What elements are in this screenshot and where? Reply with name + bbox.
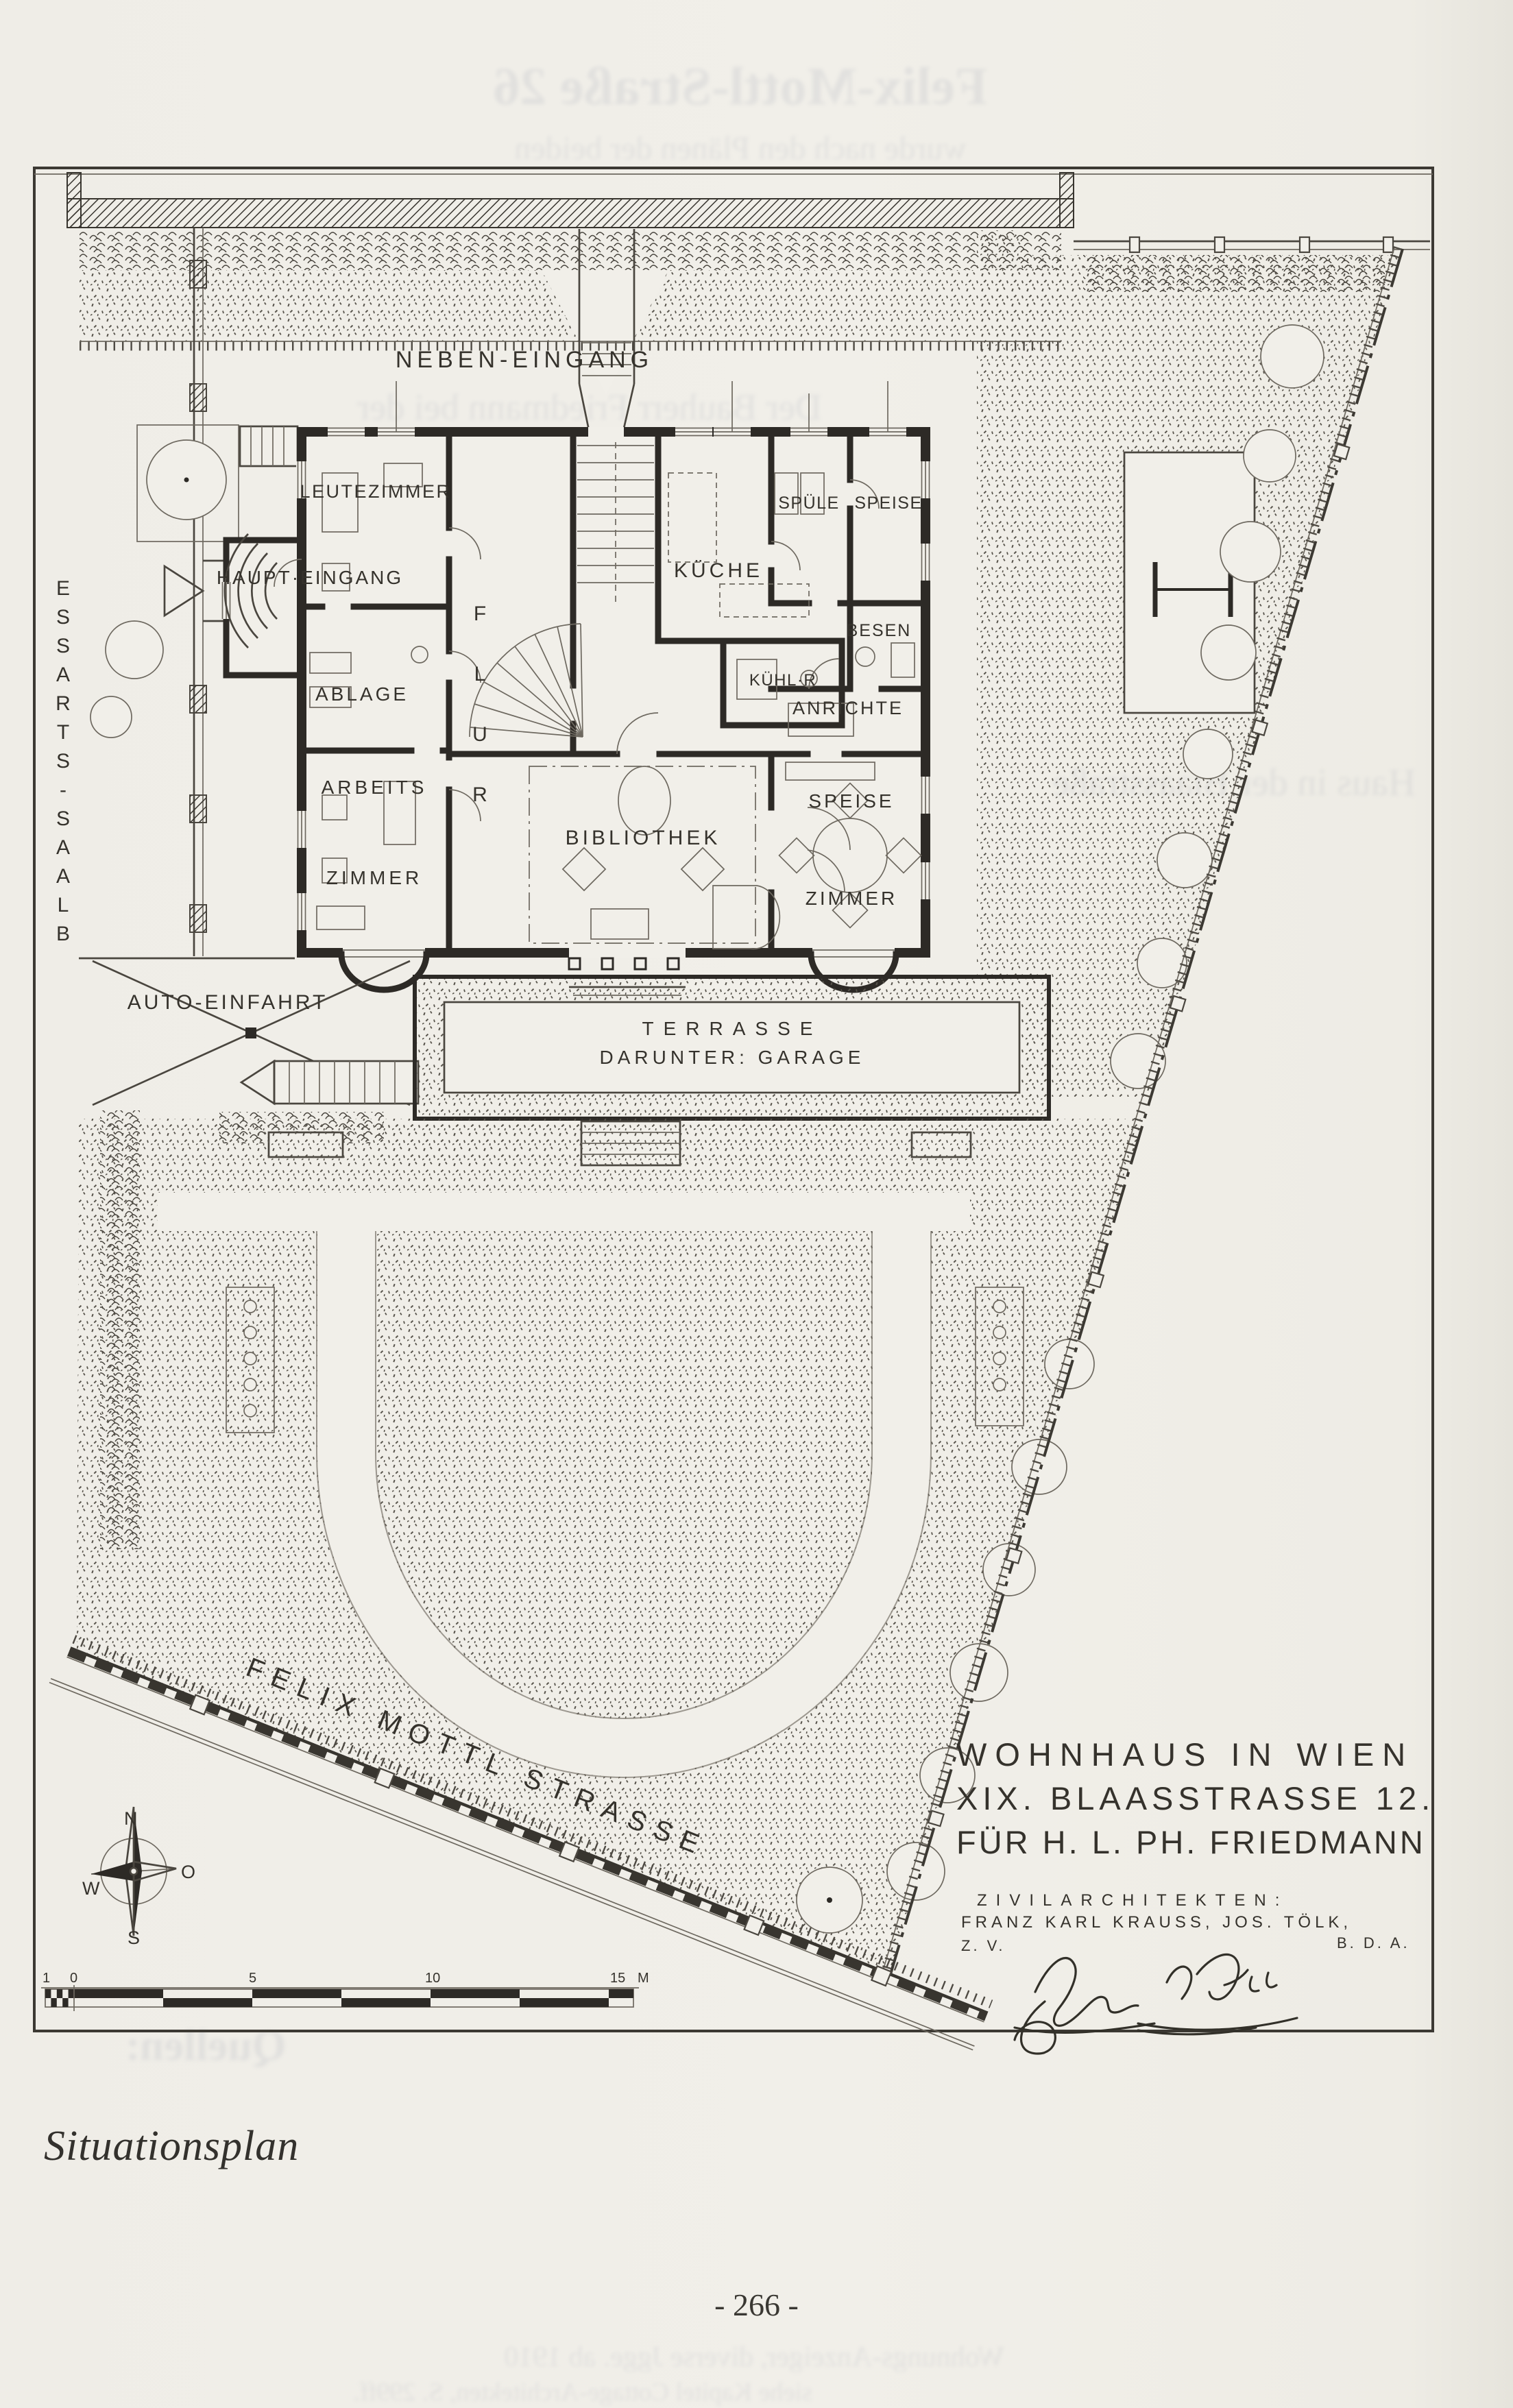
kueche-label: KÜCHE	[674, 559, 763, 582]
scale-bar: 1 0 5 10 15 M	[41, 1971, 649, 2011]
cross-walk	[158, 1193, 970, 1231]
scale-label-1: 1	[43, 1971, 50, 1986]
compass-east-label: O	[181, 1862, 195, 1882]
figure-caption: Situationsplan	[44, 2122, 299, 2171]
architects-label: ZIVILARCHITEKTEN:	[977, 1891, 1288, 1910]
scale-bar-blocks	[45, 1989, 633, 2007]
fence-posts	[190, 260, 206, 932]
architects-association-bda: B. D. A.	[1337, 1934, 1410, 1951]
title-line-3: FÜR H. L. PH. FRIEDMANN	[956, 1824, 1426, 1860]
anrichte-label: ANRICHTE	[792, 698, 904, 718]
main-gate-arrow	[165, 566, 203, 616]
auto-einfahrt-label: AUTO-EINFAHRT	[128, 991, 328, 1014]
terrasse-label: TERRASSE	[642, 1018, 823, 1039]
ablage-label: ABLAGE	[315, 683, 409, 705]
haupt-eingang-label: HAUPT·EINGANG	[217, 567, 403, 588]
darunter-garage-label: DARUNTER: GARAGE	[600, 1047, 865, 1068]
title-line-1: WOHNHAUS IN WIEN	[956, 1736, 1414, 1773]
speisekammer-label: SPEISE	[854, 494, 922, 513]
title-line-2: XIX. BLAASSTRASSE 12.	[956, 1780, 1435, 1816]
hedge-band	[100, 1110, 140, 1549]
drive-steps	[241, 1061, 418, 1104]
tree	[797, 1867, 862, 1933]
title-block: WOHNHAUS IN WIEN XIX. BLAASSTRASSE 12. F…	[956, 1736, 1435, 2054]
arbeitszimmer-label-1: ARBEITS	[322, 777, 428, 798]
compass-west-label: W	[82, 1878, 100, 1899]
kuehlraum-label: KÜHL·R	[749, 671, 816, 690]
leutezimmer-label: LEUTEZIMMER	[300, 481, 451, 502]
compass-south-label: S	[128, 1927, 140, 1948]
neben-eingang-label: NEBEN-EINGANG	[396, 347, 653, 373]
bibliothek-label: BIBLIOTHEK	[566, 827, 721, 849]
side-steps	[240, 426, 298, 466]
ghost-line: Der Bauherr Friedmann bei der	[357, 387, 822, 428]
compass-north-label: N	[124, 1808, 138, 1829]
ghost-line: wurde nach den Plänen der beiden	[514, 130, 967, 167]
book-page: Felix-Mottl-Straße 26 wurde nach den Plä…	[0, 0, 1513, 2408]
besen-label: BESEN	[847, 621, 912, 640]
ghost-line: siehe Kapitel Cottage-Architekten, S. 29…	[353, 2378, 812, 2407]
scale-label-0: 0	[70, 1971, 77, 1986]
spuele-label: SPÜLE	[778, 494, 839, 513]
porch-columns	[569, 958, 679, 969]
situationsplan-drawing: Felix-Mottl-Straße 26 wurde nach den Plä…	[0, 0, 1513, 2408]
speisezimmer-label-2: ZIMMER	[806, 888, 897, 909]
speisezimmer-label-1: SPEISE	[808, 790, 894, 812]
scale-label-m: M	[638, 1971, 649, 1986]
scale-label-5: 5	[249, 1971, 256, 1986]
scale-label-10: 10	[425, 1971, 440, 1986]
ghost-line: Quellen:	[125, 2021, 287, 2069]
ghost-line: Wohnungs-Anzeiger, diverse Jgge. ab 1910	[504, 2342, 1004, 2373]
architects-names: FRANZ KARL KRAUSS, JOS. TÖLK,	[961, 1913, 1352, 1932]
ghost-line: Felix-Mottl-Straße 26	[493, 56, 987, 116]
architects-association-zv: Z. V.	[961, 1937, 1005, 1954]
page-number: - 266 -	[0, 2287, 1513, 2323]
arbeitszimmer-label-2: ZIMMER	[326, 867, 422, 888]
compass-rose: N O W S	[82, 1807, 195, 1948]
scale-label-15: 15	[610, 1971, 625, 1986]
blaas-strasse-label: ESSARTS-SAALB	[56, 577, 71, 945]
architect-signature	[1015, 1954, 1297, 2054]
